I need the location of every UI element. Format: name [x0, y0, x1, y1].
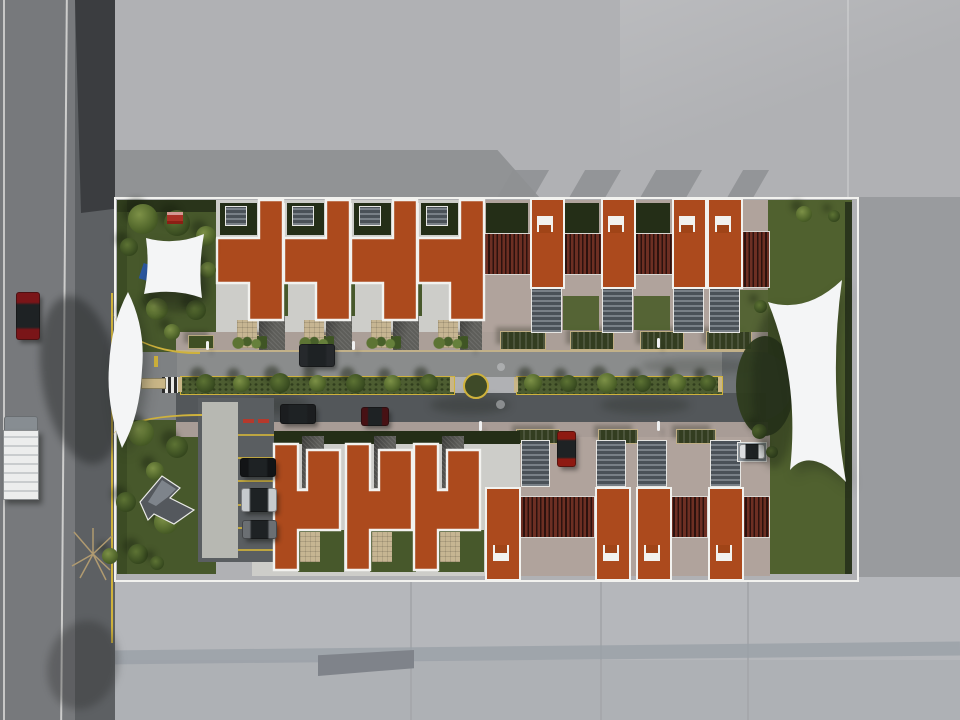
roof-skylight-inner [539, 225, 551, 233]
hedge-row-ne [486, 203, 528, 233]
house-bar-roof [636, 487, 672, 581]
garden-tree [166, 436, 188, 458]
pergola-roof [518, 496, 595, 538]
parked-car-gray [242, 520, 277, 539]
house-bar-roof [485, 487, 521, 581]
median-tree [597, 373, 617, 393]
garden-tree [128, 544, 148, 564]
scene-aerial-site-render [0, 0, 960, 720]
hedge-row-ne [562, 203, 599, 233]
median-tree [700, 375, 716, 391]
parking-stall-line [238, 549, 274, 551]
patio-court [521, 440, 550, 487]
parking-arrow [243, 419, 254, 423]
patio-court [637, 440, 667, 487]
house-bar-roof [595, 487, 631, 581]
ground-top-light-corner [620, 0, 960, 160]
median-tree [233, 375, 250, 392]
median-tree [634, 375, 651, 392]
house-cross-roof [416, 198, 486, 323]
sidewalk-planter-framed [500, 331, 546, 350]
median-end-cap [450, 377, 454, 392]
house-cross-roof [282, 198, 352, 323]
median-tree [384, 375, 401, 392]
street-car-black [299, 344, 335, 367]
tree-circle-marker [463, 373, 489, 399]
shrub-row [231, 336, 267, 350]
shade-sail-west [100, 288, 152, 454]
sidewalk-west-shadow [75, 0, 115, 213]
parked-car-black [240, 458, 276, 477]
ground-bottom-lower [110, 660, 960, 720]
house-cross-roof-south [412, 428, 482, 574]
garden-tree [116, 492, 136, 512]
house-cross-roof [349, 198, 419, 323]
pergola-roof [740, 496, 770, 538]
house-bar-roof [708, 487, 744, 581]
parking-stall-line [238, 480, 274, 482]
house-cross-roof-south [344, 428, 414, 574]
house-bar-roof [601, 198, 636, 289]
median-end-cap [718, 377, 722, 392]
ground-top-seam [847, 0, 849, 197]
street-car-black [280, 404, 316, 424]
parking-stall-line [238, 434, 274, 436]
parking-walkway [202, 402, 238, 558]
median-planter-east [516, 376, 723, 395]
roof-skylight-inner [681, 225, 693, 233]
street-lamp [206, 341, 209, 350]
roof-skylight-inner [610, 225, 622, 233]
roof-skylight-inner [717, 225, 729, 233]
pergola-roof [560, 233, 603, 275]
house-cross-roof-south [272, 428, 342, 574]
pergola-roof [668, 496, 708, 538]
patio-court [673, 287, 704, 333]
patio-court [602, 287, 633, 333]
shade-sail-east [756, 270, 854, 490]
street-car-maroon [361, 407, 389, 426]
roof-skylight-inner [605, 545, 617, 553]
patio-car-red [557, 431, 576, 467]
building-shadow-strip [115, 150, 540, 198]
lawn-patch [634, 296, 670, 330]
entrance-arrow [154, 356, 158, 367]
lawn-patch [563, 296, 599, 330]
lawn-bush [828, 210, 840, 222]
median-tree [668, 374, 686, 392]
road-car-red [16, 292, 40, 340]
garden-tree [150, 556, 164, 570]
patio-court [531, 287, 562, 333]
road-shadow [600, 396, 690, 414]
bare-tree [66, 526, 120, 582]
playground-equipment-red [167, 212, 183, 224]
shrub-row [432, 336, 468, 350]
median-tree [196, 374, 215, 393]
median-end-cap [178, 377, 182, 392]
median-tree [309, 375, 326, 392]
median-tree [524, 374, 542, 392]
pergola-roof [631, 233, 674, 275]
street-lamp [657, 338, 660, 348]
street-lane-line [3, 0, 5, 720]
garden-tree [164, 324, 180, 340]
patio-court [596, 440, 626, 487]
median-tree [270, 373, 290, 393]
pergola-roof [483, 233, 531, 275]
house-bar-roof [707, 198, 743, 289]
median-tree [346, 374, 365, 393]
garden-pavilion [138, 474, 196, 526]
patio-court [709, 287, 740, 333]
ground-right [854, 197, 960, 577]
median-tree [560, 375, 577, 392]
sidewalk-planter-framed [640, 331, 684, 350]
manhole [497, 363, 505, 371]
sidewalk-planter-framed [570, 331, 614, 350]
hedge-row-ne [633, 203, 670, 233]
truck-trailer [3, 430, 39, 500]
shrub-row [365, 336, 401, 350]
house-cross-roof [215, 198, 285, 323]
parking-arrow [258, 419, 269, 423]
median-end-cap [514, 377, 518, 392]
garden-tree [120, 238, 138, 256]
roof-skylight-inner [646, 545, 658, 553]
median-tree [420, 374, 438, 392]
roof-skylight-inner [718, 545, 730, 553]
lawn-bush [796, 206, 812, 222]
parked-car-silver [241, 488, 277, 512]
roof-skylight-inner [495, 545, 507, 553]
street-lamp [657, 421, 660, 431]
house-bar-roof [530, 198, 565, 289]
street-lamp [352, 341, 355, 350]
manhole [496, 400, 505, 409]
house-bar-roof [672, 198, 707, 289]
